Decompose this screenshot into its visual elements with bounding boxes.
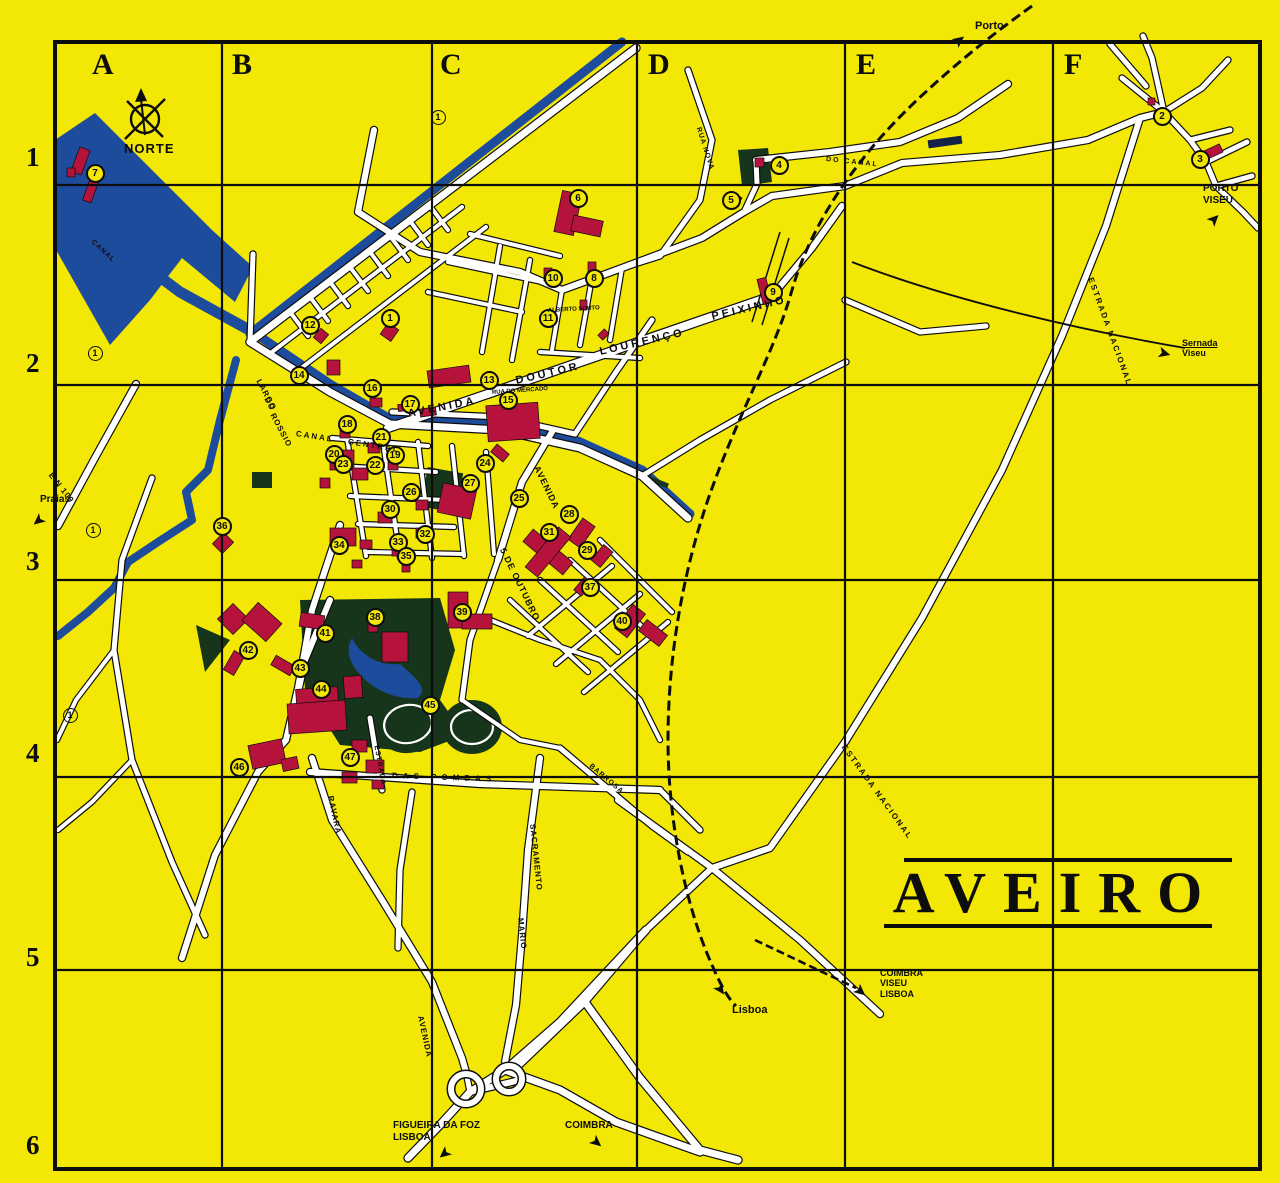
aveiro-city-map: { "map": { "title": "AVEIRO", "compass_l… bbox=[0, 0, 1280, 1183]
building bbox=[340, 430, 350, 438]
roads bbox=[57, 36, 1258, 1160]
building bbox=[491, 444, 510, 462]
building bbox=[734, 195, 742, 203]
building bbox=[416, 528, 429, 538]
sernada-line bbox=[852, 262, 1185, 348]
building bbox=[360, 540, 372, 549]
building bbox=[271, 655, 296, 676]
building bbox=[370, 398, 382, 407]
building bbox=[392, 548, 402, 556]
building bbox=[544, 268, 552, 281]
building bbox=[248, 739, 286, 770]
grid-lines bbox=[55, 42, 1260, 1169]
building bbox=[486, 402, 540, 442]
building bbox=[437, 483, 476, 519]
building bbox=[398, 403, 409, 411]
building bbox=[588, 262, 596, 275]
building bbox=[402, 565, 410, 572]
building bbox=[223, 650, 244, 675]
map-canvas: AVEIRO NORTE ABCDEF123456123456789101112… bbox=[0, 0, 1280, 1183]
building bbox=[568, 518, 595, 548]
building bbox=[343, 675, 362, 698]
building bbox=[352, 468, 368, 480]
building bbox=[416, 500, 428, 510]
building bbox=[242, 602, 282, 641]
building bbox=[287, 700, 347, 734]
building bbox=[462, 614, 492, 629]
building bbox=[388, 462, 398, 470]
building bbox=[382, 632, 408, 662]
building bbox=[327, 360, 340, 375]
building bbox=[299, 612, 325, 629]
building bbox=[330, 528, 356, 546]
building bbox=[352, 560, 362, 568]
building bbox=[755, 158, 764, 167]
compass-icon bbox=[125, 88, 165, 139]
building-layer bbox=[67, 98, 1223, 789]
building bbox=[378, 512, 392, 523]
building bbox=[366, 760, 384, 773]
building bbox=[368, 624, 378, 632]
building bbox=[330, 450, 354, 470]
building bbox=[368, 443, 380, 453]
building bbox=[571, 215, 604, 237]
building bbox=[313, 328, 328, 344]
building bbox=[1148, 98, 1155, 105]
building bbox=[380, 323, 399, 342]
map-artwork bbox=[0, 0, 1280, 1183]
building bbox=[352, 740, 367, 752]
building bbox=[320, 478, 330, 488]
building bbox=[67, 168, 75, 177]
building bbox=[580, 300, 587, 310]
building bbox=[420, 407, 437, 417]
building bbox=[372, 780, 384, 789]
